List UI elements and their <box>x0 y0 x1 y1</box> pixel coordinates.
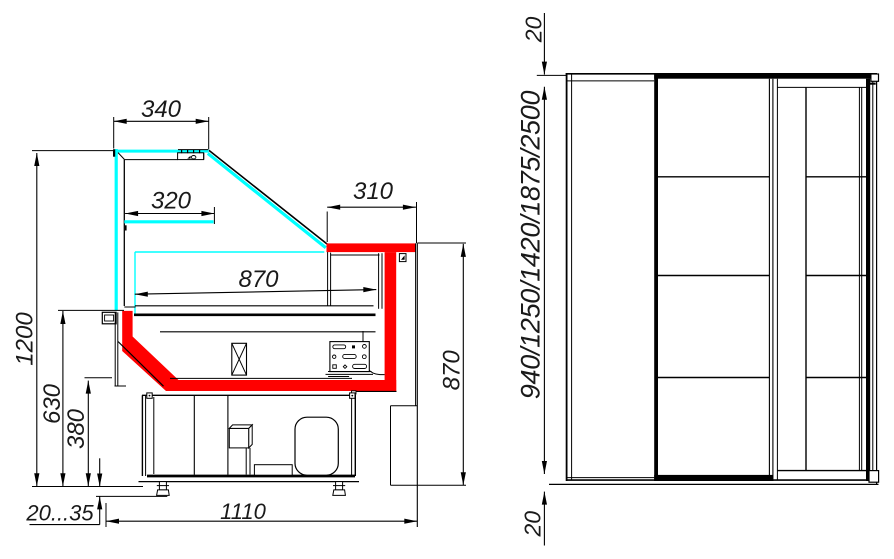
svg-text:20...35: 20...35 <box>25 501 94 526</box>
svg-text:320: 320 <box>151 188 192 215</box>
svg-text:20: 20 <box>521 17 547 44</box>
svg-text:870: 870 <box>439 350 466 391</box>
svg-text:870: 870 <box>238 266 279 293</box>
svg-text:1200: 1200 <box>12 312 39 366</box>
svg-text:20: 20 <box>520 511 546 538</box>
svg-text:1110: 1110 <box>220 499 266 524</box>
svg-text:310: 310 <box>353 178 394 205</box>
svg-text:380: 380 <box>63 408 90 449</box>
svg-text:340: 340 <box>141 96 182 123</box>
svg-text:940/1250/1420/1875/2500: 940/1250/1420/1875/2500 <box>516 91 546 400</box>
svg-text:630: 630 <box>39 383 66 424</box>
